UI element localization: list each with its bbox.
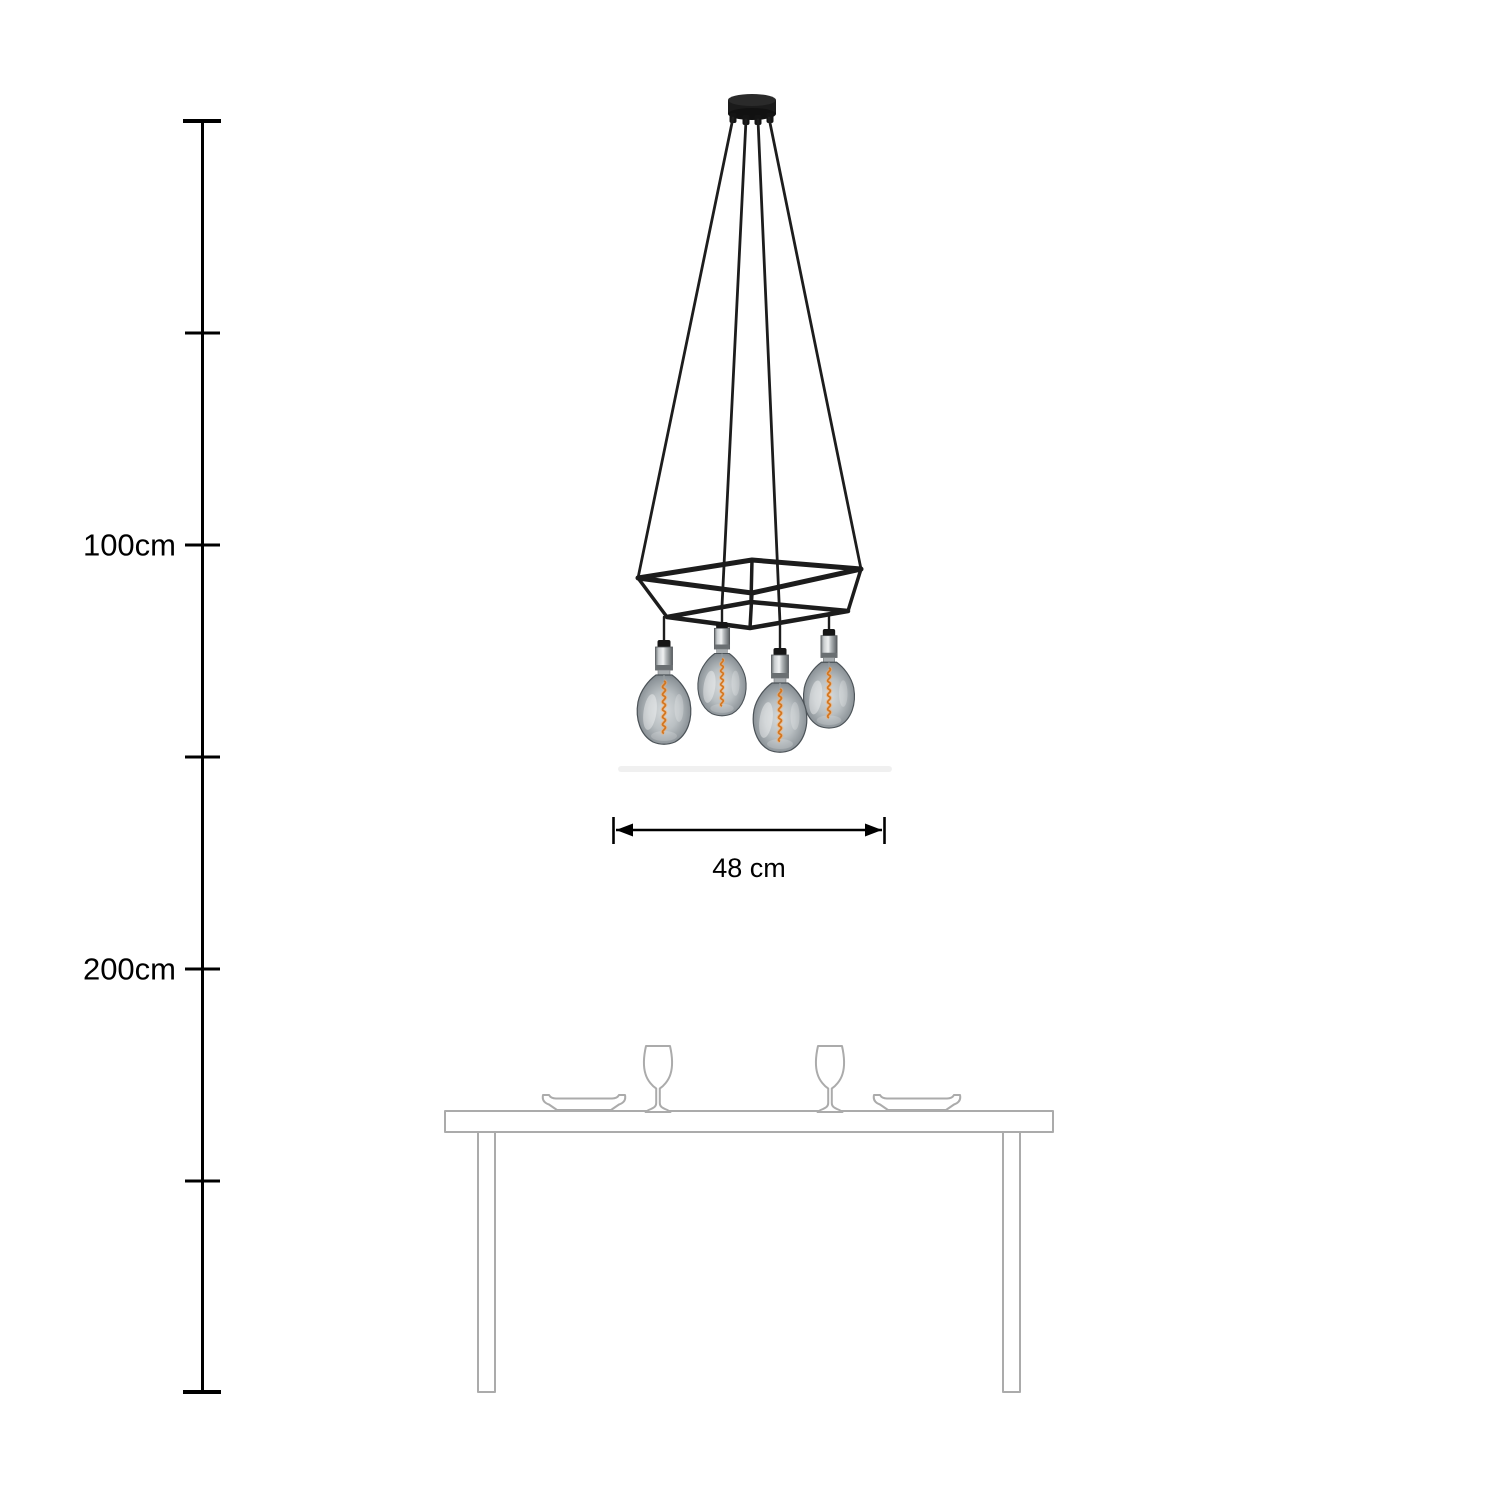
dimension-arrow-left [616,824,633,837]
diagram-canvas: 100cm 200cm 48 cm [0,0,1500,1500]
cage-lower-frame [667,602,848,628]
light-bulb-front-right [753,648,807,752]
light-bulb-back-right [804,629,855,728]
wine-glass-right [816,1046,844,1112]
pendant-lamp [618,94,892,772]
suspension-cables [638,118,861,623]
plate-right [874,1095,961,1110]
floor-shadow [618,766,892,772]
ruler-label-200cm: 200cm [83,952,176,987]
light-bulb-front-left [637,640,691,744]
width-dimension [614,817,885,844]
height-ruler [183,121,221,1392]
cage-strut [750,593,752,628]
ruler-label-100cm: 100cm [83,528,176,563]
dimension-label-48cm: 48 cm [712,853,786,883]
table-top [445,1111,1053,1132]
cage-upper-frame [638,560,861,593]
plate-left [543,1095,626,1110]
table-leg-left [478,1132,495,1392]
pendant-cable [758,120,780,623]
dimension-arrow-right [865,824,882,837]
pendant-cable [769,118,861,569]
cage-strut [638,578,667,617]
cage-strut [848,569,861,611]
table-leg-right [1003,1132,1020,1392]
light-bulb-back-left [698,622,746,716]
pendant-cable [638,118,733,578]
dining-table-sketch [445,1046,1053,1392]
cage-frames [638,560,861,628]
pendant-cable [722,120,746,606]
product-dimension-diagram: 100cm 200cm 48 cm [0,0,1500,1500]
wine-glass-left [644,1046,672,1112]
